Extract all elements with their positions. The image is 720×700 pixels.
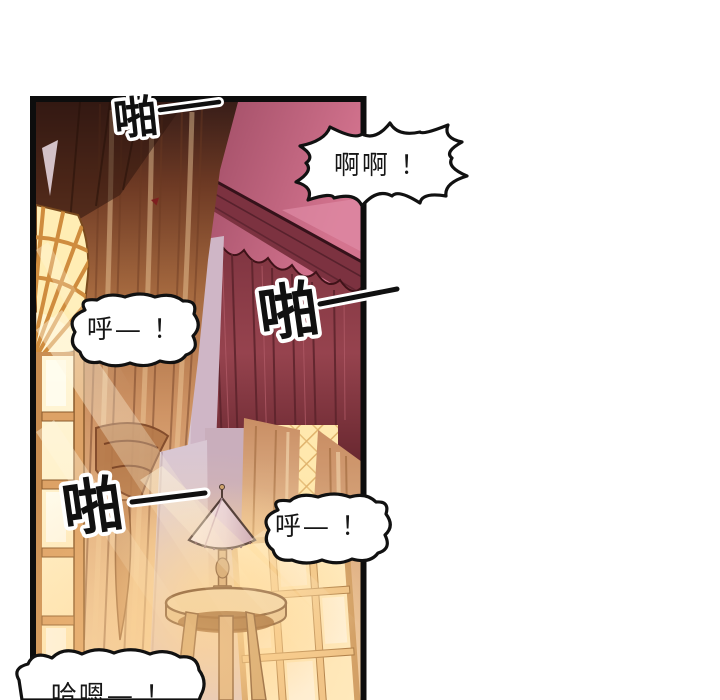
sfx-pa-top-text: 啪 bbox=[111, 91, 160, 146]
bubble-hu-upper: 呼— ！ bbox=[72, 294, 198, 366]
bubble-ahah-text: 啊啊 ！ bbox=[334, 151, 428, 181]
comic-panel-art: 啪 啪 啪 啊啊 ！ 呼— ！ 呼— ！ bbox=[0, 0, 720, 700]
sfx-pa-bottom-text: 啪 bbox=[58, 469, 127, 547]
bubble-hu-upper-text: 呼— ！ bbox=[87, 315, 181, 345]
bubble-hu-lower: 呼— ！ bbox=[266, 494, 390, 563]
comic-page: 啪 啪 啪 啊啊 ！ 呼— ！ 呼— ！ bbox=[0, 0, 720, 700]
bubble-hu-lower-text: 呼— ！ bbox=[275, 512, 369, 542]
bubble-haen: 哈嗯— ！ bbox=[17, 650, 204, 700]
bubble-haen-text: 哈嗯— ！ bbox=[51, 681, 173, 700]
sfx-pa-middle-text: 啪 bbox=[254, 274, 323, 352]
